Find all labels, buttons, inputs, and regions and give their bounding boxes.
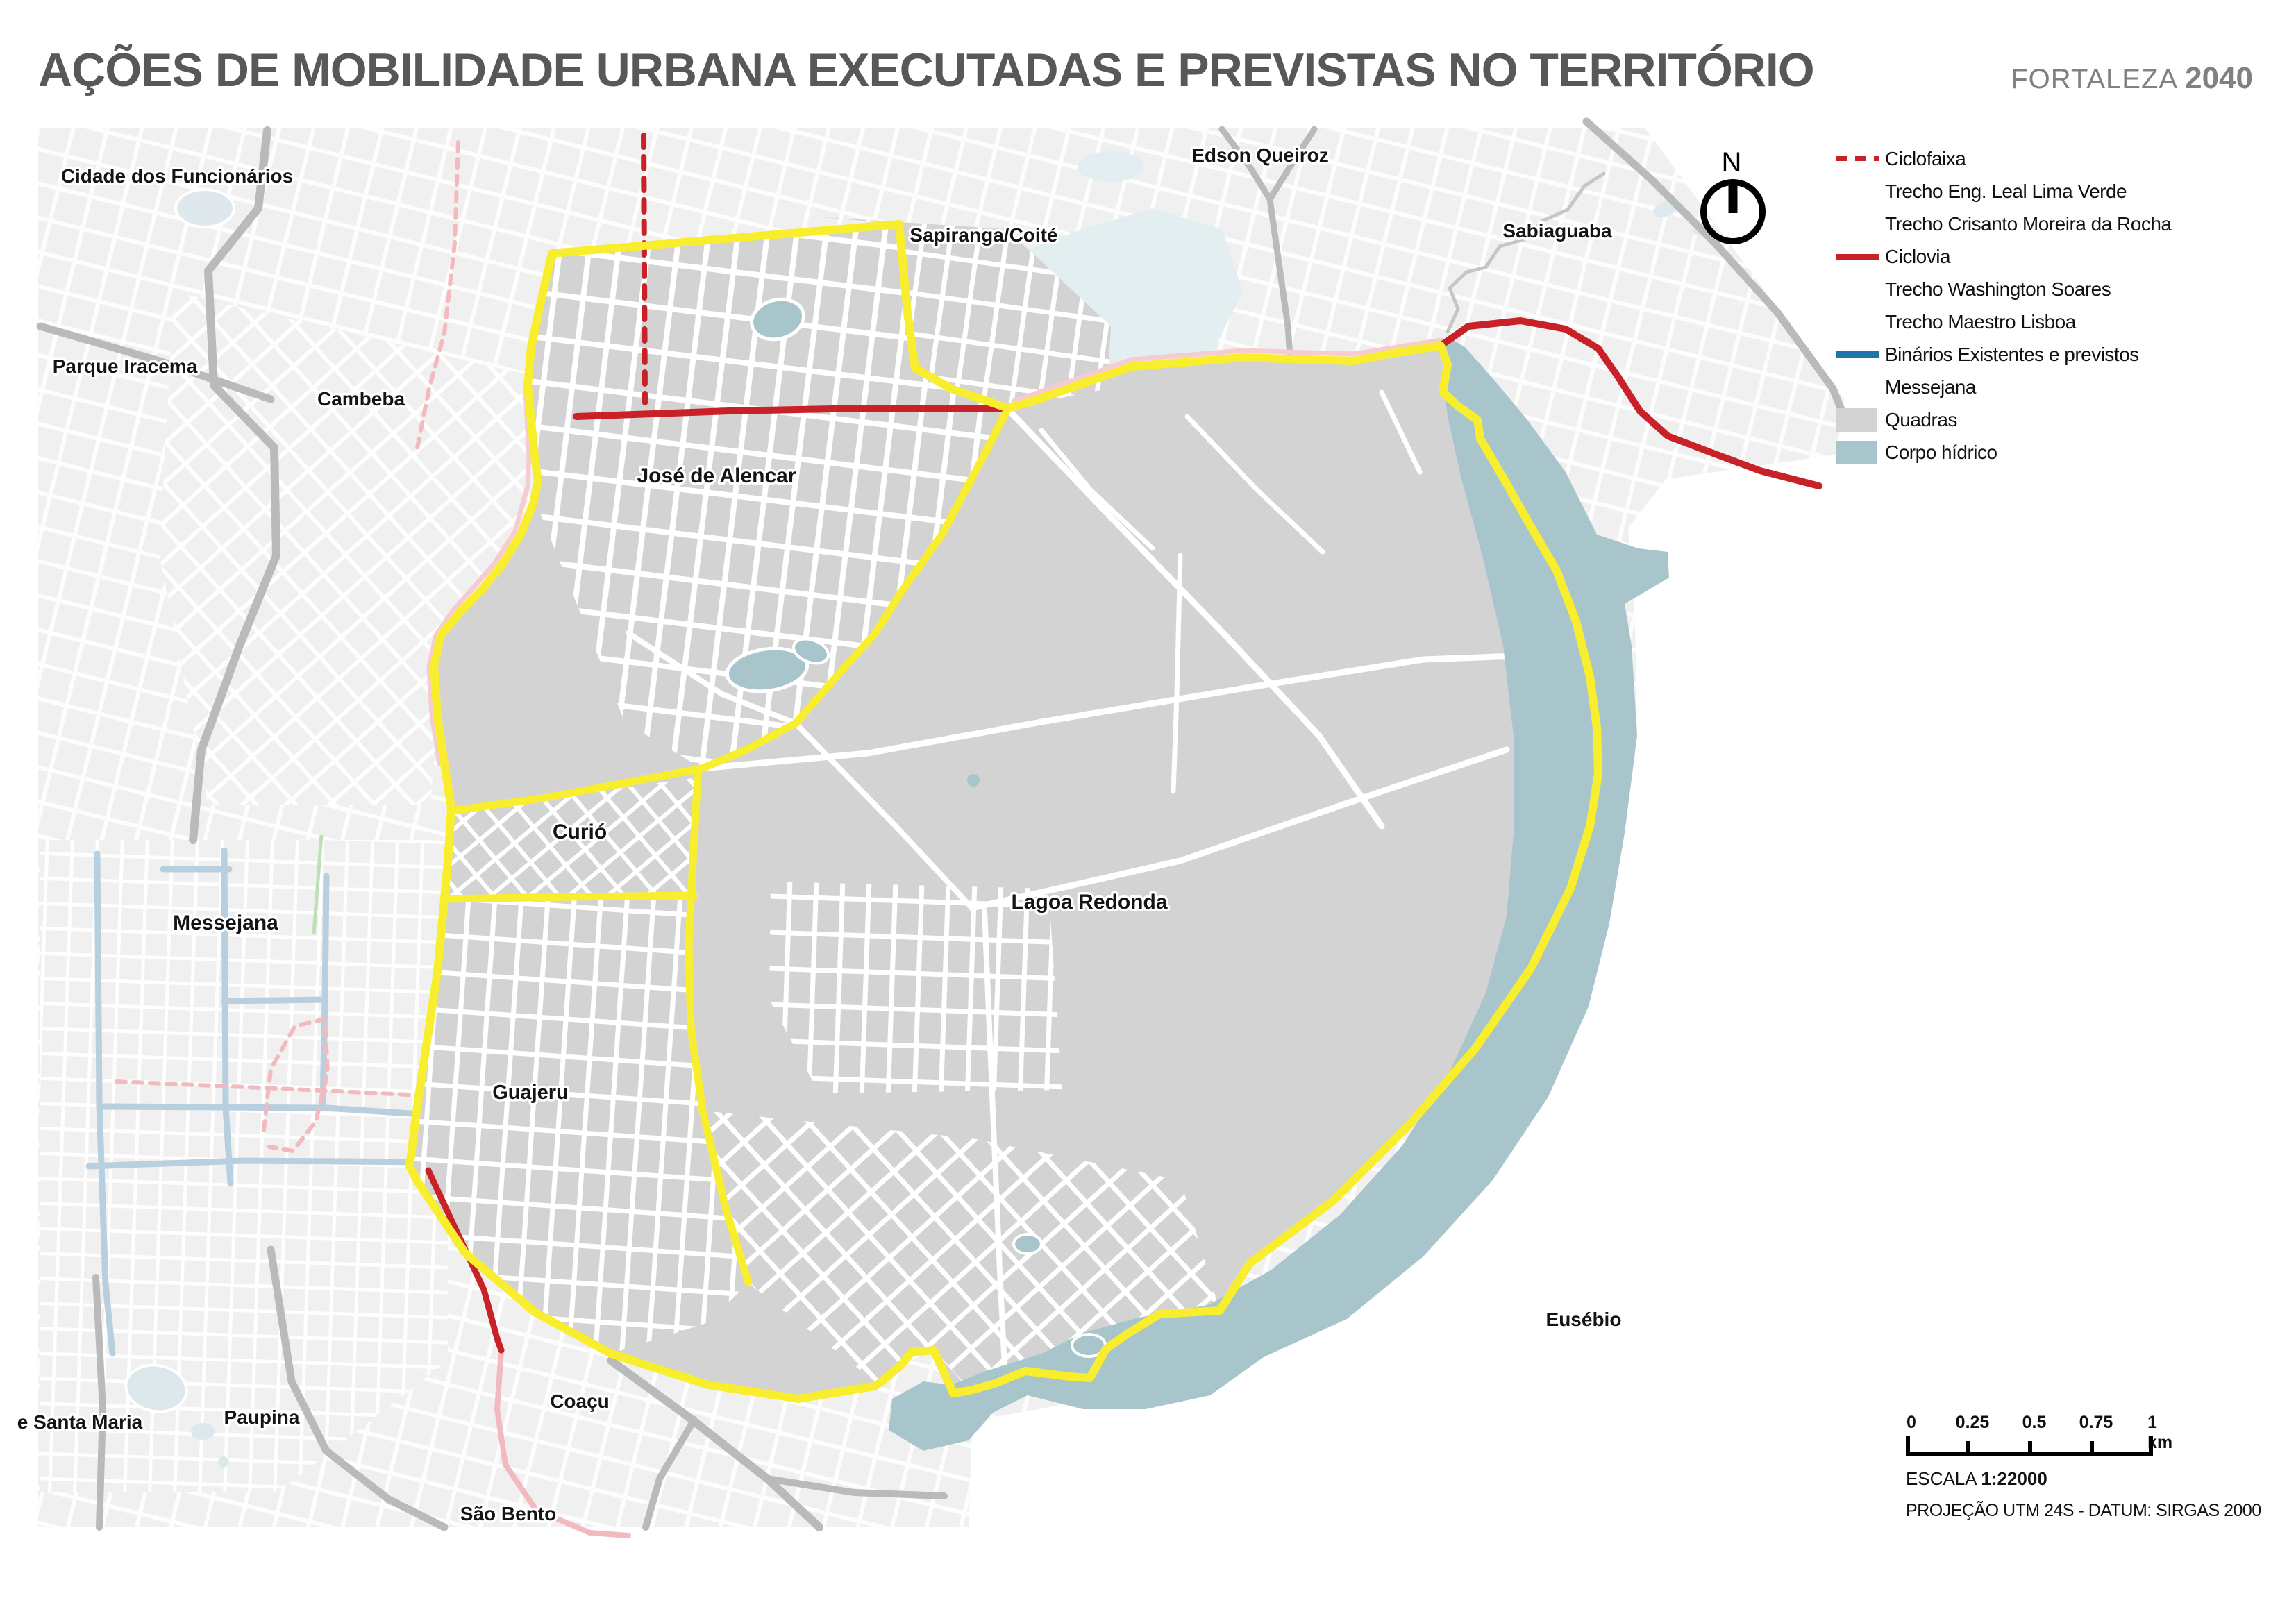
label-guajeru: Guajeru: [492, 1082, 569, 1104]
legend: Ciclofaixa Trecho Eng. Leal Lima Verde T…: [1836, 142, 2296, 469]
scale-tick-025: 0.25: [1956, 1413, 1990, 1433]
label-edson-queiroz: Edson Queiroz: [1191, 144, 1329, 166]
legend-item-corpo-hidrico: Corpo hídrico: [1836, 436, 2296, 469]
scale-bar: [1906, 1436, 2153, 1456]
blue-solid-line-icon: [1836, 351, 1885, 358]
legend-item-trecho-crisanto-moreira: Trecho Crisanto Moreira da Rocha: [1836, 208, 2296, 240]
scale-tick-0: 0: [1907, 1413, 1916, 1433]
scale-tick-labels: 0 0.25 0.5 0.75 1 km: [1906, 1413, 2197, 1436]
red-dashed-line-icon: [1836, 156, 1885, 161]
map-poster-page: { "title": "AÇÕES DE MOBILIDADE URBANA E…: [0, 0, 2296, 1623]
brand-logo: FORTALEZA2040: [2011, 61, 2253, 96]
scale-tick-075: 0.75: [2079, 1413, 2113, 1433]
scale-bar-block: 0 0.25 0.5 0.75 1 km ESCALA 1:22000 PROJ…: [1906, 1413, 2197, 1521]
north-arrow: N: [1700, 147, 1763, 244]
legend-item-messejana: Messejana: [1836, 371, 2296, 403]
label-eusebio: Eusébio: [1546, 1309, 1622, 1330]
label-messejana: Messejana: [173, 911, 278, 934]
legend-item-trecho-washington-soares: Trecho Washington Soares: [1836, 273, 2296, 305]
projection-note: PROJEÇÃO UTM 24S - DATUM: SIRGAS 2000: [1906, 1501, 2197, 1521]
scale-ratio: ESCALA 1:22000: [1906, 1468, 2197, 1490]
label-paupina: Paupina: [224, 1406, 300, 1428]
water-square-icon: [1836, 441, 1885, 464]
legend-item-ciclofaixa: Ciclofaixa: [1836, 142, 2296, 175]
legend-item-trecho-maestro-lisboa: Trecho Maestro Lisboa: [1836, 305, 2296, 338]
label-cidade-dos-funcionarios: Cidade dos Funcionários: [61, 165, 293, 187]
legend-item-trecho-leal-lima-verde: Trecho Eng. Leal Lima Verde: [1836, 175, 2296, 208]
label-santa-maria: e Santa Maria: [17, 1411, 143, 1433]
legend-item-quadras: Quadras: [1836, 403, 2296, 436]
label-jose-de-alencar: José de Alencar: [637, 464, 796, 487]
label-sapiranga-coite: Sapiranga/Coité: [910, 224, 1057, 246]
north-letter: N: [1700, 147, 1763, 178]
red-solid-line-icon: [1836, 254, 1885, 260]
label-coacu: Coaçu: [550, 1390, 610, 1412]
gray-square-icon: [1836, 408, 1885, 432]
label-sabiaguaba: Sabiaguaba: [1502, 220, 1612, 242]
legend-item-ciclovia: Ciclovia: [1836, 240, 2296, 273]
brand-year: 2040: [2185, 61, 2253, 95]
label-sao-bento: São Bento: [460, 1503, 556, 1524]
brand-name: FORTALEZA: [2011, 64, 2178, 94]
label-curio: Curió: [553, 821, 607, 843]
page-title: AÇÕES DE MOBILIDADE URBANA EXECUTADAS E …: [38, 43, 1814, 97]
legend-item-binarios: Binários Existentes e previstos: [1836, 338, 2296, 371]
north-compass-icon: [1700, 179, 1766, 244]
scale-tick-05: 0.5: [2022, 1413, 2047, 1433]
label-parque-iracema: Parque Iracema: [53, 355, 198, 377]
label-cambeba: Cambeba: [317, 388, 405, 410]
label-lagoa-redonda: Lagoa Redonda: [1011, 891, 1167, 914]
